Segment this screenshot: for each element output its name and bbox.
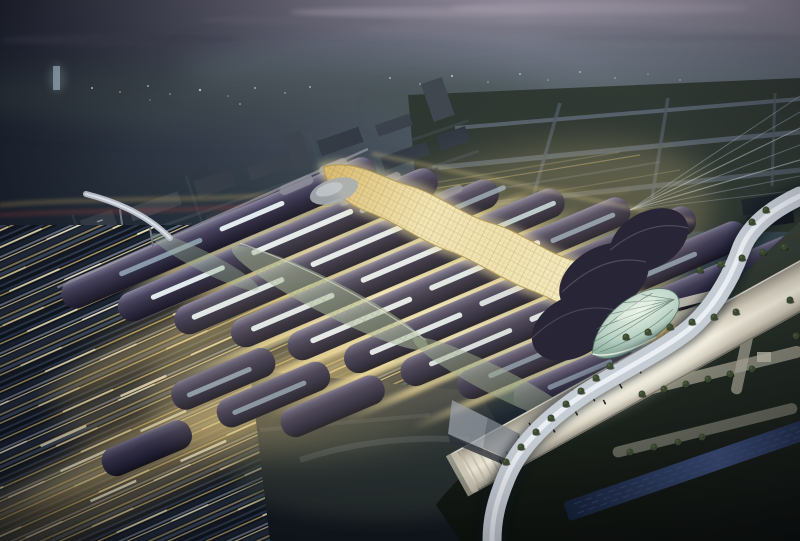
station-rendering (0, 0, 800, 541)
vignette (0, 0, 800, 541)
scene-canvas (0, 0, 800, 541)
